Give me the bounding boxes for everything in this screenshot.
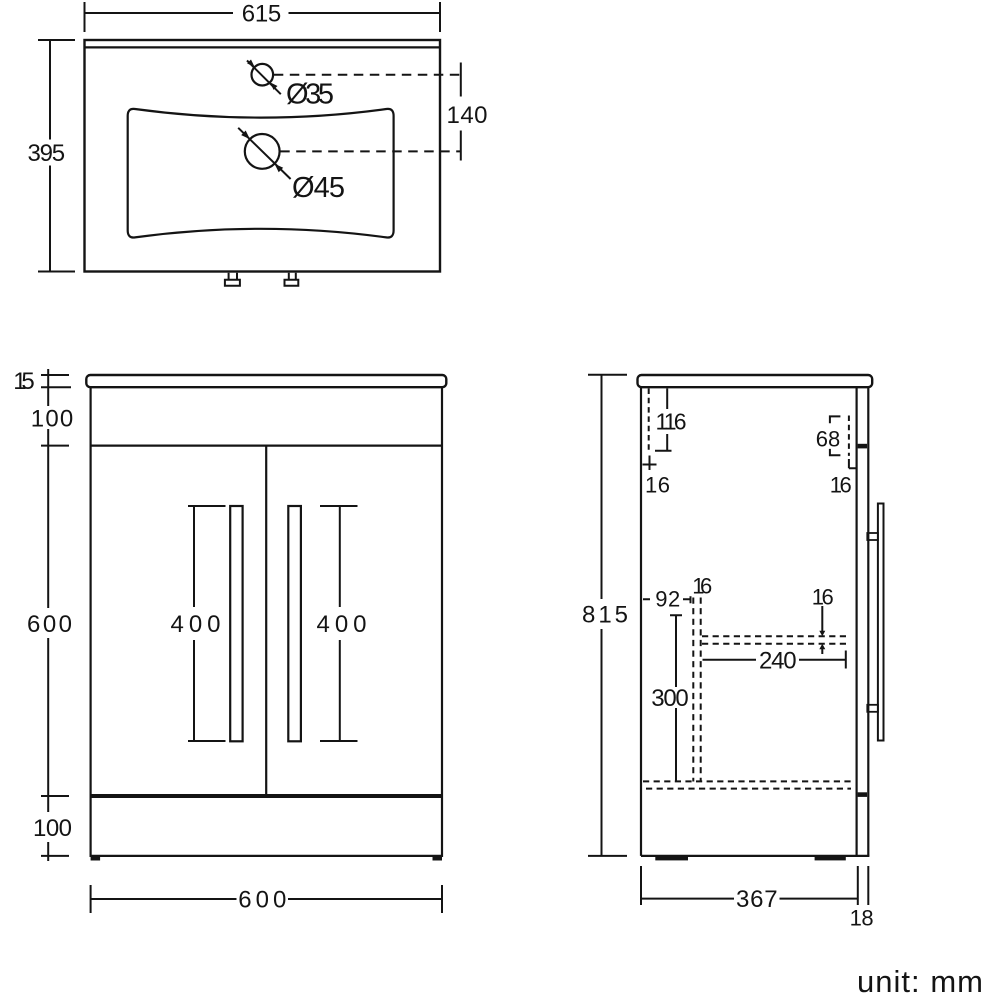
svg-text:Ø35: Ø35 [286, 79, 334, 111]
svg-text:16: 16 [830, 473, 852, 498]
svg-text:140: 140 [447, 102, 488, 129]
svg-text:600: 600 [27, 611, 72, 638]
svg-text:116: 116 [656, 409, 687, 435]
svg-text:815: 815 [582, 602, 628, 629]
svg-text:unit: mm: unit: mm [857, 964, 983, 999]
svg-text:240: 240 [759, 647, 797, 674]
svg-text:100: 100 [33, 815, 72, 842]
svg-text:367: 367 [736, 886, 778, 913]
svg-text:395: 395 [28, 140, 66, 167]
svg-text:100: 100 [31, 406, 74, 433]
svg-text:16: 16 [692, 574, 712, 599]
svg-text:15: 15 [13, 368, 35, 395]
svg-text:Ø45: Ø45 [292, 172, 345, 204]
svg-text:92: 92 [655, 587, 680, 612]
svg-text:400: 400 [317, 611, 367, 638]
svg-text:300: 300 [651, 685, 689, 712]
svg-text:600: 600 [238, 887, 286, 914]
svg-text:68: 68 [816, 426, 841, 451]
svg-text:16: 16 [645, 473, 670, 498]
svg-text:16: 16 [812, 585, 834, 610]
svg-text:18: 18 [850, 905, 874, 930]
svg-text:615: 615 [242, 1, 282, 28]
svg-text:400: 400 [171, 611, 221, 638]
